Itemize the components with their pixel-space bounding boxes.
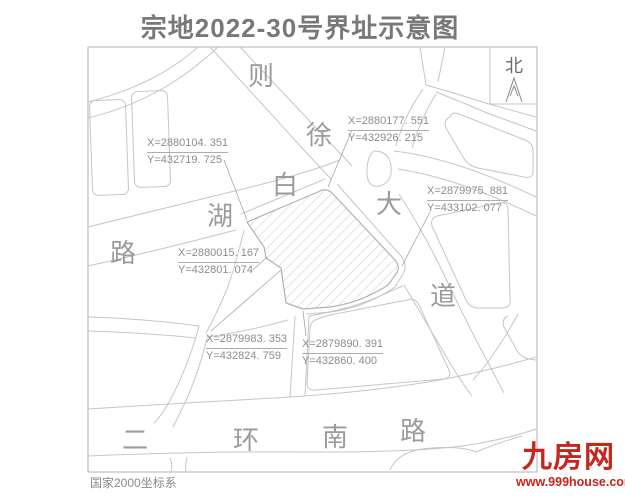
boundary-point-label-1: X=2880104. 351 Y=432719. 725 bbox=[147, 136, 228, 168]
boundary-point-label-4: X=2880015. 167 Y=432801. 074 bbox=[178, 246, 259, 278]
logo-text: 九房网 bbox=[516, 441, 621, 475]
road-char-lu: 路 bbox=[110, 240, 136, 266]
road-char-bai: 白 bbox=[272, 172, 298, 198]
road-char-huan: 环 bbox=[233, 427, 259, 453]
logo-url: www.999house.com bbox=[516, 475, 621, 489]
boundary-point-label-2: X=2880177. 551 Y=432926. 215 bbox=[348, 114, 429, 146]
road-char-da: 大 bbox=[376, 191, 402, 217]
road-char-xu: 徐 bbox=[306, 122, 332, 148]
road-char-dao: 道 bbox=[430, 283, 456, 309]
road-char-nan: 南 bbox=[322, 424, 348, 450]
watermark-logo: 九房网 www.999house.com bbox=[516, 441, 621, 489]
road-char-hu: 湖 bbox=[207, 203, 233, 229]
boundary-point-label-3: X=2879975. 881 Y=433102. 077 bbox=[427, 184, 508, 216]
north-label: 北 bbox=[505, 52, 523, 78]
parcel-sketch-page: 宗地2022-30号界址示意图 bbox=[0, 0, 625, 500]
boundary-point-label-6: X=2879890. 391 Y=432860. 400 bbox=[302, 337, 383, 369]
road-char-ze: 则 bbox=[248, 63, 274, 89]
north-arrow-icon bbox=[506, 78, 522, 102]
map-canvas bbox=[0, 0, 625, 500]
boundary-point-label-5: X=2879983. 353 Y=432824. 759 bbox=[206, 332, 287, 364]
road-char-lu2: 路 bbox=[400, 418, 426, 444]
road-char-er: 二 bbox=[122, 427, 148, 453]
coordinate-system-note: 国家2000坐标系 bbox=[90, 474, 177, 491]
